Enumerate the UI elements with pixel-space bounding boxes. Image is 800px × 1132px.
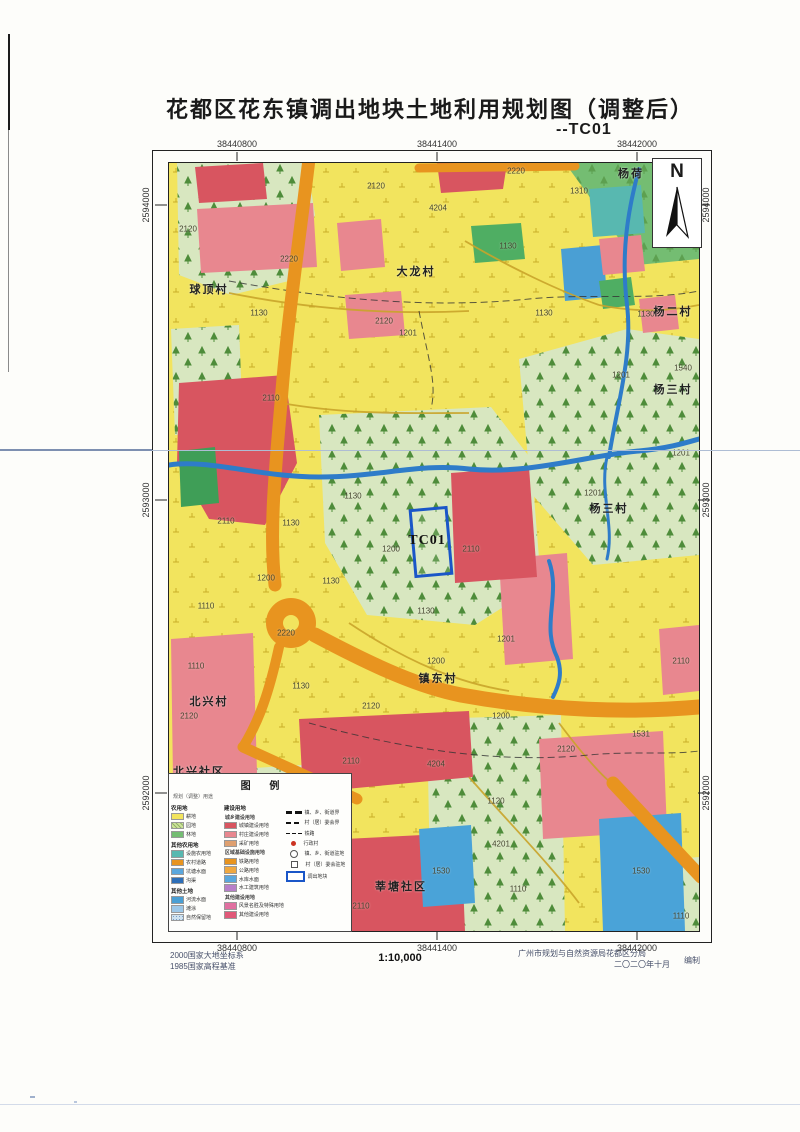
legend-symbol: 村（居）委会驻地 [286,861,349,868]
scan-artifact-vline [8,130,9,372]
legend-item: 河流水面 [171,896,222,904]
legend-symbol-label: 村（居）委会界 [304,819,339,826]
legend-swatch [224,858,237,866]
scan-artifact-fold-line [0,449,152,451]
legend-swatch [171,850,184,858]
legend-header: 其他农用地 [171,841,222,849]
tick-mark [698,500,710,501]
legend-item: 坑塘水面 [171,868,222,876]
legend-symbol: 村（居）委会界 [286,819,349,826]
tick-mark [155,793,167,794]
datum-note: 2000国家大地坐标系 1985国家高程基准 [170,950,244,972]
legend-symbol: 铁路 [286,830,349,837]
legend-symbol: 镇、乡、街道驻地 [286,850,349,858]
legend-subheader: 区域基础设施用地 [225,849,285,856]
legend-symbol-label: 铁路 [304,830,314,837]
y-coordinate-label-left: 2592000 [141,775,151,810]
legend-swatch [171,914,184,922]
legend-item-label: 村庄建设用地 [239,831,269,838]
legend-item-label: 公路用地 [239,867,259,874]
legend-item-label: 水工建筑用地 [239,884,269,891]
legend-swatch [171,896,184,904]
legend-swatch [171,813,184,821]
legend-item: 林地 [171,831,222,839]
legend-swatch [224,831,237,839]
legend-item-label: 园地 [186,822,196,829]
x-coordinate-label-bottom: 38441400 [417,943,457,953]
legend-header: 建设用地 [224,804,285,812]
legend-item-label: 铁路用地 [239,858,259,865]
tick-mark [237,152,238,161]
legend-title: 图 例 [177,777,351,792]
x-coordinate-label-top: 38440800 [217,139,257,149]
credit-line1: 广州市规划与自然资源局花都区分局 [518,948,698,959]
legend-item: 滩涂 [171,905,222,913]
tick-mark [698,793,710,794]
legend-item-label: 城镇建设用地 [239,822,269,829]
tick-mark [437,931,438,940]
legend-item: 自然保留地 [171,914,222,922]
legend-swatch [224,875,237,883]
legend-item: 公路用地 [224,866,285,874]
legend-symbol: 镇、乡、街道界 [286,809,349,816]
mark-village-icon [291,861,298,868]
legend-symbol-label: 镇、乡、街道驻地 [304,850,344,857]
legend-column-symbols: 镇、乡、街道界村（居）委会界铁路行政村镇、乡、街道驻地村（居）委会驻地调出地块 [286,801,349,923]
legend-symbol-label: 调出地块 [307,873,327,880]
scan-artifact-vline [8,34,10,130]
legend-swatch [224,822,237,830]
dot-red-icon [291,841,296,846]
legend-swatch [224,902,237,910]
north-arrow-icon [659,183,695,241]
legend-item: 城镇建设用地 [224,822,285,830]
legend-item-label: 水库水面 [239,876,259,883]
legend-swatch [171,905,184,913]
legend-swatch [171,868,184,876]
datum-line2: 1985国家高程基准 [170,961,244,972]
dash-thin-icon [286,833,302,834]
legend-columns: 农用地耕地园地林地其他农用地设施农用地农村道路坑塘水面沟渠其他土地河流水面滩涂自… [169,801,351,923]
legend-item-label: 采矿用地 [239,840,259,847]
scan-artifact-dot [74,1101,77,1103]
legend-item-label: 自然保留地 [186,914,211,921]
legend-item-label: 风景名胜及特殊用地 [239,902,284,909]
legend-swatch [171,822,184,830]
dash-med-icon [286,822,302,824]
legend-symbol: 行政村 [286,840,349,847]
legend-item-label: 耕地 [186,813,196,820]
dash-thick-icon [286,811,302,814]
parcel-tc01-outline [410,508,452,577]
legend-item: 沟渠 [171,877,222,885]
y-coordinate-label-left: 2593000 [141,482,151,517]
legend-header: 农用地 [171,804,222,812]
legend-item-label: 滩涂 [186,905,196,912]
legend-swatch [171,877,184,885]
legend-header: 其他土地 [171,887,222,895]
legend-item: 水工建筑用地 [224,884,285,892]
legend-symbol-label: 村（居）委会驻地 [305,861,345,868]
north-label: N [653,161,701,183]
rect-blue-icon [286,871,305,882]
legend-swatch [171,831,184,839]
legend-swatch [171,859,184,867]
legend-note: 规划（调整）用途 [173,793,351,800]
page-subtitle: --TC01 [556,121,612,139]
legend-item: 水库水面 [224,875,285,883]
tick-mark [437,152,438,161]
north-arrow: N [652,158,702,248]
mark-town-icon [290,850,298,858]
x-coordinate-label-top: 38442000 [617,139,657,149]
legend-column-construction: 建设用地城乡建设用地城镇建设用地村庄建设用地采矿用地区域基础设施用地铁路用地公路… [224,801,285,923]
legend-symbol-label: 镇、乡、街道界 [304,809,339,816]
legend-subheader: 其他建设用地 [225,894,285,901]
legend-subheader: 城乡建设用地 [225,814,285,821]
legend-box: 图 例 规划（调整）用途 农用地耕地园地林地其他农用地设施农用地农村道路坑塘水面… [168,773,352,932]
legend-symbol-label: 行政村 [303,840,318,847]
tick-mark [155,205,167,206]
legend-item-label: 农村道路 [186,859,206,866]
legend-item: 设施农用地 [171,850,222,858]
legend-item: 其他建设用地 [224,911,285,919]
legend-item-label: 设施农用地 [186,850,211,857]
x-coordinate-label-top: 38441400 [417,139,457,149]
legend-column-agricultural: 农用地耕地园地林地其他农用地设施农用地农村道路坑塘水面沟渠其他土地河流水面滩涂自… [171,801,222,923]
scan-artifact-dot [30,1096,35,1098]
legend-item: 风景名胜及特殊用地 [224,902,285,910]
map-scale: 1:10,000 [355,952,445,964]
tick-mark [637,931,638,940]
legend-item: 园地 [171,822,222,830]
tick-mark [637,152,638,161]
scan-artifact-line [0,1104,800,1105]
legend-item: 耕地 [171,813,222,821]
credit-note: 广州市规划与自然资源局花都区分局 编制 二〇二〇年十月 [518,948,698,970]
legend-item-label: 河流水面 [186,896,206,903]
legend-item-label: 林地 [186,831,196,838]
legend-item-label: 沟渠 [186,877,196,884]
x-coordinate-label-bottom: 38440800 [217,943,257,953]
legend-swatch [224,911,237,919]
legend-item: 采矿用地 [224,840,285,848]
tick-mark [155,500,167,501]
legend-item: 村庄建设用地 [224,831,285,839]
x-coordinate-label-bottom: 38442000 [617,943,657,953]
legend-swatch [224,866,237,874]
legend-item-label: 其他建设用地 [239,911,269,918]
legend-item-label: 坑塘水面 [186,868,206,875]
legend-swatch [224,840,237,848]
credit-mark: 编制 [684,955,700,966]
legend-item: 农村道路 [171,859,222,867]
legend-swatch [224,884,237,892]
legend-symbol: 调出地块 [286,871,349,882]
page-title: 花都区花东镇调出地块土地利用规划图（调整后） [150,92,710,124]
scanned-planning-map-page: 花都区花东镇调出地块土地利用规划图（调整后） --TC01 [0,0,800,1132]
credit-line2: 二〇二〇年十月 [518,959,670,970]
legend-item: 铁路用地 [224,858,285,866]
y-coordinate-label-left: 2594000 [141,187,151,222]
tick-mark [237,931,238,940]
